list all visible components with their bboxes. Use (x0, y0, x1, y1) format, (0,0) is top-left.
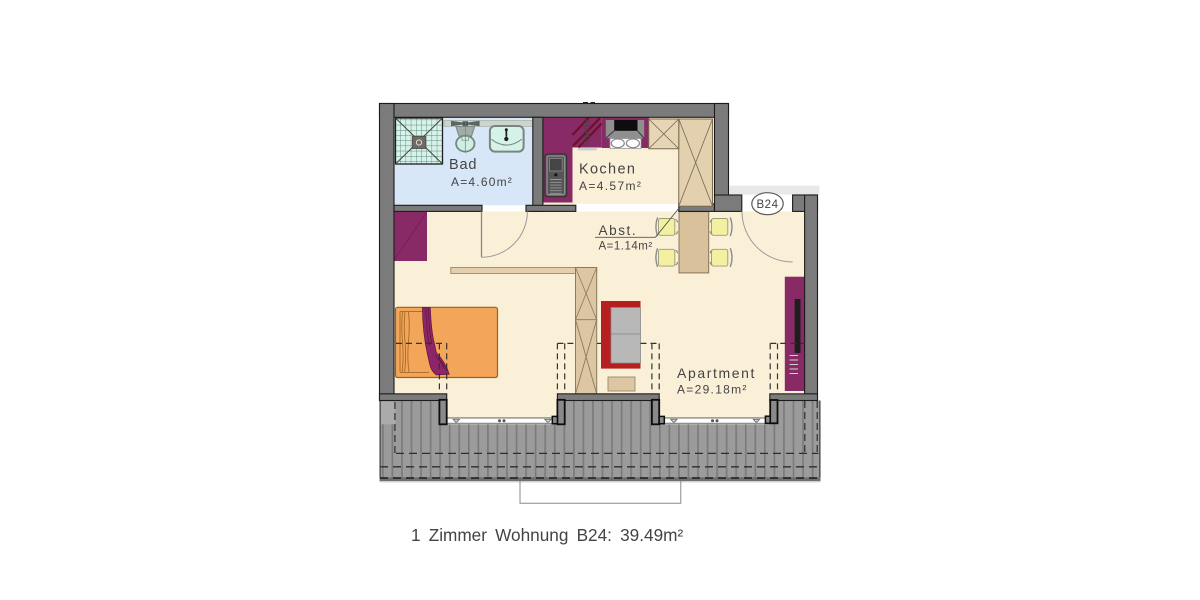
svg-text:1 Zimmer Wohnung B24: 39.49m²: 1 Zimmer Wohnung B24: 39.49m² (411, 525, 683, 545)
svg-text:A=1.14m²: A=1.14m² (599, 240, 653, 252)
svg-text:A=4.57m²: A=4.57m² (579, 179, 642, 193)
svg-text:Abst.: Abst. (599, 223, 638, 238)
svg-text:Bad: Bad (449, 157, 477, 173)
svg-text:A=4.60m²: A=4.60m² (451, 175, 513, 189)
svg-text:A=29.18m²: A=29.18m² (677, 383, 748, 397)
svg-text:B24: B24 (757, 199, 779, 211)
svg-text:Apartment: Apartment (677, 365, 756, 381)
svg-text:Kochen: Kochen (579, 162, 636, 178)
